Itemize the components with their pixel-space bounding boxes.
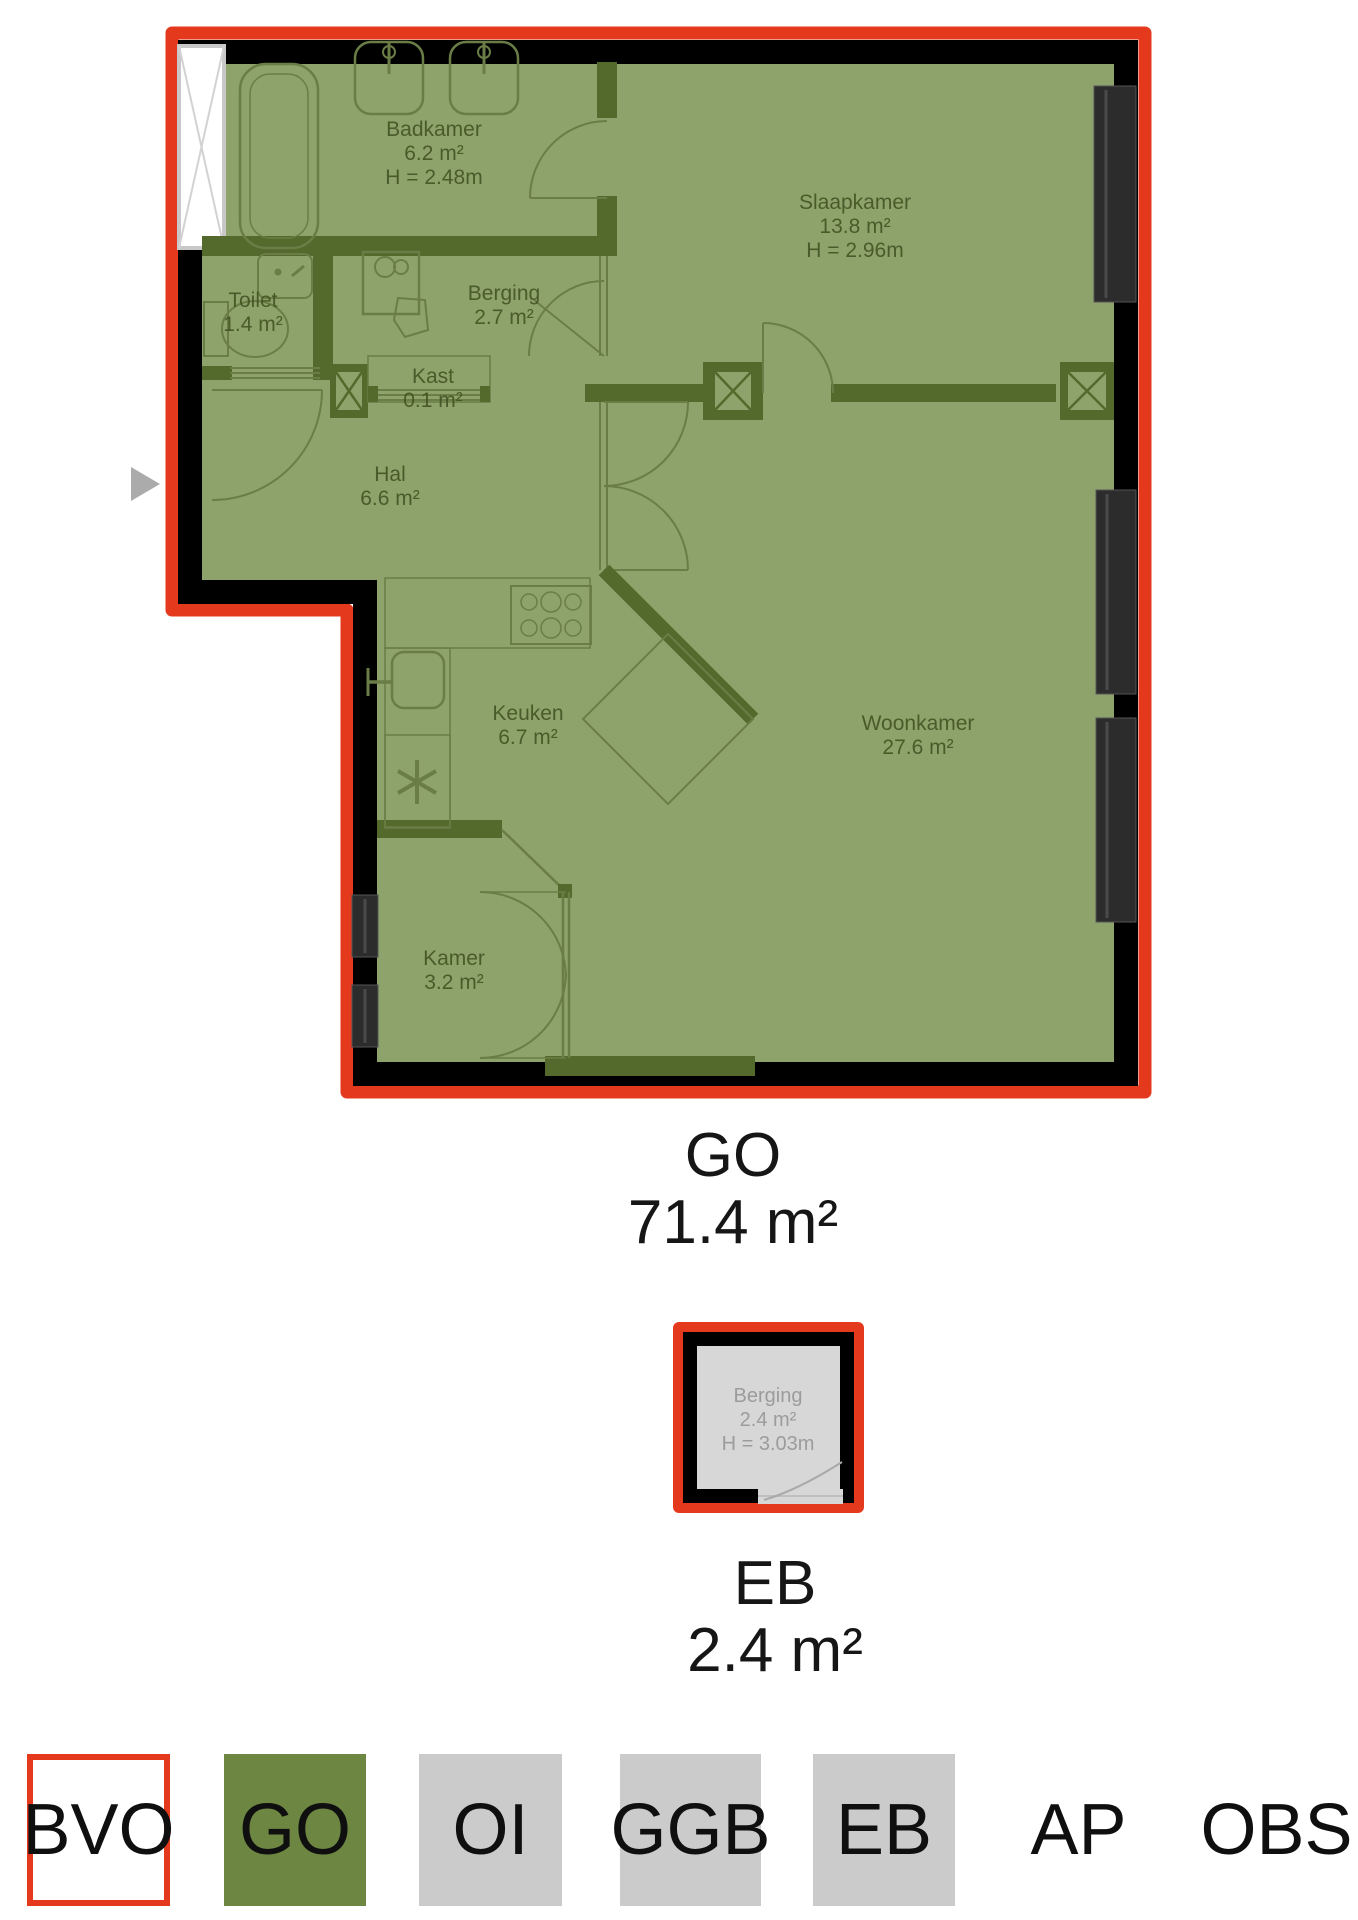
room-label-woonkamer: Woonkamer 27.6 m² — [862, 712, 975, 760]
room-height: H = 3.03m — [722, 1432, 815, 1456]
room-height: H = 2.48m — [385, 166, 482, 190]
caption-code: EB — [687, 1550, 863, 1617]
legend-item-obs[interactable]: OBS — [1208, 1754, 1345, 1906]
entrance-arrow-icon — [131, 467, 160, 501]
room-label-toilet: Toilet 1.4 m² — [223, 289, 283, 337]
room-name: Badkamer — [385, 118, 482, 142]
floorplan-drawing — [0, 0, 1358, 1920]
room-area: 3.2 m² — [423, 971, 485, 995]
room-area: 6.2 m² — [385, 142, 482, 166]
legend-label: BVO — [22, 1789, 174, 1871]
legend-item-ap[interactable]: AP — [1010, 1754, 1147, 1906]
floorplan-page: Badkamer 6.2 m² H = 2.48m Slaapkamer 13.… — [0, 0, 1358, 1920]
legend-label: GO — [239, 1789, 351, 1871]
room-name: Woonkamer — [862, 712, 975, 736]
room-area: 2.7 m² — [468, 306, 540, 330]
caption-area: 71.4 m² — [628, 1189, 838, 1256]
room-area: 6.7 m² — [492, 726, 563, 750]
legend-label: AP — [1030, 1789, 1126, 1871]
room-area: 0.1 m² — [403, 389, 463, 413]
legend-item-oi[interactable]: OI — [419, 1754, 562, 1906]
room-name: Berging — [468, 282, 540, 306]
room-label-keuken: Keuken 6.7 m² — [492, 702, 563, 750]
room-label-berging: Berging 2.7 m² — [468, 282, 540, 330]
legend-label: OBS — [1200, 1789, 1352, 1871]
legend-label: EB — [836, 1789, 932, 1871]
room-area: 6.6 m² — [360, 487, 420, 511]
room-name: Slaapkamer — [799, 191, 911, 215]
room-height: H = 2.96m — [799, 239, 911, 263]
legend-label: OI — [452, 1789, 528, 1871]
caption-area: 2.4 m² — [687, 1617, 863, 1684]
room-name: Kamer — [423, 947, 485, 971]
room-label-slaapkamer: Slaapkamer 13.8 m² H = 2.96m — [799, 191, 911, 263]
legend-label: GGB — [610, 1789, 770, 1871]
room-label-kast: Kast 0.1 m² — [403, 365, 463, 413]
legend-item-bvo[interactable]: BVO — [27, 1754, 170, 1906]
legend-item-eb[interactable]: EB — [813, 1754, 955, 1906]
bathroom-window — [179, 46, 224, 248]
room-label-hal: Hal 6.6 m² — [360, 463, 420, 511]
legend-item-ggb[interactable]: GGB — [620, 1754, 761, 1906]
legend-item-go[interactable]: GO — [224, 1754, 366, 1906]
room-name: Toilet — [223, 289, 283, 313]
storage-plan-caption: EB 2.4 m² — [687, 1550, 863, 1684]
room-area: 1.4 m² — [223, 313, 283, 337]
room-name: Kast — [403, 365, 463, 389]
room-label-badkamer: Badkamer 6.2 m² H = 2.48m — [385, 118, 482, 190]
main-plan-caption: GO 71.4 m² — [628, 1122, 838, 1256]
room-area: 13.8 m² — [799, 215, 911, 239]
room-area: 27.6 m² — [862, 736, 975, 760]
right-wall-windows — [1094, 86, 1136, 922]
room-label-kamer: Kamer 3.2 m² — [423, 947, 485, 995]
room-area: 2.4 m² — [722, 1408, 815, 1432]
room-label-storage-berging: Berging 2.4 m² H = 3.03m — [722, 1384, 815, 1456]
room-name: Hal — [360, 463, 420, 487]
room-name: Keuken — [492, 702, 563, 726]
main-plan-walls — [190, 52, 1126, 1074]
room-name: Berging — [722, 1384, 815, 1408]
caption-code: GO — [628, 1122, 838, 1189]
